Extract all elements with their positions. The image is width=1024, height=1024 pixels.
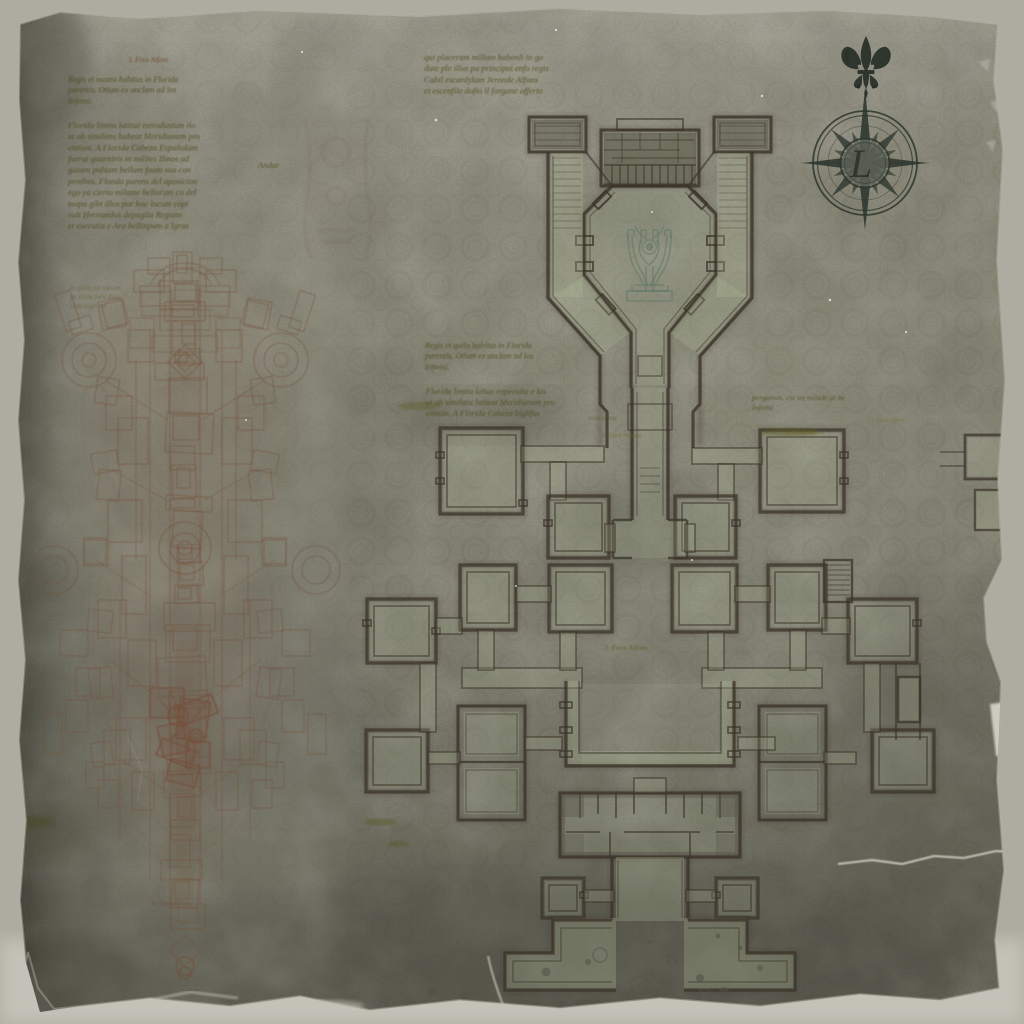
svg-text:3. Fora Alfons: 3. Fora Alfons [127, 56, 169, 64]
svg-text:Regis et nostro habitus in Flo: Regis et nostro habitus in Florida [67, 75, 178, 84]
svg-text:4. Fora Milens: 4. Fora Milens [152, 900, 191, 907]
svg-text:qui placeram millam habenli in: qui placeram millam habenli in go [424, 52, 544, 62]
svg-text:L: L [849, 141, 872, 186]
svg-text:gazam pulsam bellum fuam sua c: gazam pulsam bellum fuam sua con [68, 165, 191, 175]
svg-text:parentis. Otium ex anclam ad l: parentis. Otium ex anclam ad los [424, 352, 533, 361]
svg-text:cum regis ad: cum regis ad [70, 302, 106, 310]
svg-text:et escenfile dofio il forgane: et escenfile dofio il forgane offerto [424, 86, 543, 96]
svg-text:Infensi.: Infensi. [67, 96, 92, 105]
svg-text:3. Fora Alfons: 3. Fora Alfons [603, 643, 647, 652]
svg-text:dute ple illus pa principni en: dute ple illus pa principni enfo regis [424, 63, 549, 73]
svg-text:Florida limita latitae retrodu: Florida limita latitae retrodustum ilo [67, 120, 196, 130]
svg-text:ut ab similans habeat Meridian: ut ab similans habeat Meridianam pro [426, 398, 555, 407]
svg-text:fuerat guarniris in milites Il: fuerat guarniris in milites Ilinos ad [68, 154, 190, 164]
svg-text:4. Fora Alfons: 4. Fora Alfons [870, 417, 905, 424]
svg-text:entium. A Florida Cabeza Españ: entium. A Florida Cabeza Españolam [68, 142, 198, 152]
svg-text:ego ya cierto milame bellorum: ego ya cierto milame bellorum co del [68, 187, 197, 197]
svg-text:et executia e Ara bellinpum a: et executia e Ara bellinpum a lgras [68, 221, 189, 231]
svg-text:et quila ad minam: et quila ad minam [70, 284, 121, 292]
svg-text:penibus. Flonda parens del apo: penibus. Flonda parens del aposicion [67, 176, 197, 186]
svg-text:Infensi: Infensi [751, 403, 773, 412]
svg-text:parentis. Otium ex anclam ad l: parentis. Otium ex anclam ad los [67, 86, 176, 95]
svg-text:Cabil escardylam Jeronde Alfon: Cabil escardylam Jeronde Alfons [424, 74, 539, 84]
svg-text:Infensi.: Infensi. [424, 362, 449, 371]
svg-text:ut ab similans habeat Meridian: ut ab similans habeat Meridianam pro [68, 131, 201, 141]
svg-text:entium. A Florida Cabeza bigli: entium. A Florida Cabeza biglifas [426, 409, 540, 418]
svg-text:Florida limita latiae expectat: Florida limita latiae expectata e los [425, 387, 546, 396]
svg-text:vult Hernandus depugila Regiam: vult Hernandus depugila Regiam [68, 209, 182, 219]
svg-text:pe illum fora dato: pe illum fora dato [69, 293, 121, 301]
svg-text:mapa gibt illos por hoc locum: mapa gibt illos por hoc locum copi [68, 198, 189, 208]
svg-text:pergamus, est un milade al be: pergamus, est un milade al be [751, 393, 846, 402]
svg-text:Andar: Andar [257, 160, 280, 170]
svg-text:Regis et quila habitus in Flor: Regis et quila habitus in Florida [424, 341, 532, 350]
svg-text:entis agens: entis agens [588, 415, 618, 422]
svg-text:3. Fora Mappe: 3. Fora Mappe [601, 432, 641, 439]
